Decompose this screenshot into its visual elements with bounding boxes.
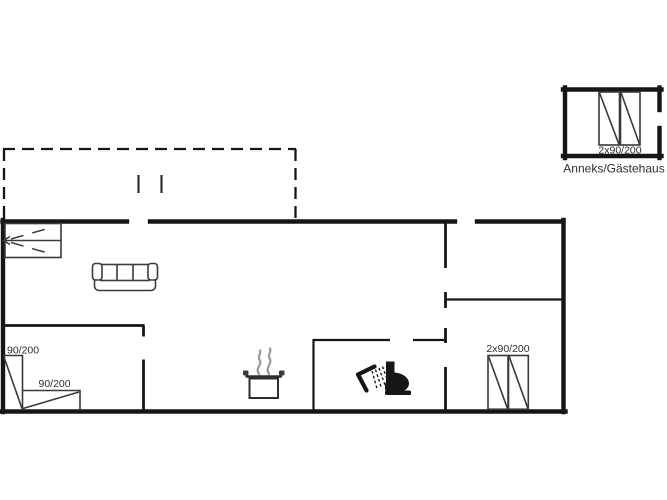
shower-arm: [358, 367, 375, 391]
floor-plan: 90/200 90/200 2x90/200 2x90/200 Anneks/G…: [0, 0, 667, 500]
shower-icon: [358, 367, 388, 391]
toilet-bowl: [385, 362, 409, 393]
double-bed-main: [488, 356, 528, 410]
interior-walls: [2, 221, 564, 411]
steam-wave-2: [268, 349, 271, 375]
bed-label-vertical: 90/200: [7, 345, 39, 357]
shower-spray-3: [379, 368, 385, 385]
bed-label-horizontal: 90/200: [39, 378, 71, 390]
toilet-base: [385, 391, 411, 396]
annex-building: 2x90/200 Anneks/Gästehaus: [563, 88, 665, 176]
sofa-armrest-right: [148, 264, 158, 281]
bunk-bed-diagonal-top: [11, 227, 53, 239]
shower-spray-1: [372, 371, 378, 391]
bed-diagonal: [4, 357, 22, 409]
terrace-outline: [3, 149, 296, 218]
sofa-armrest-left: [93, 264, 103, 281]
pot-handle-right: [279, 371, 285, 376]
single-bed-vertical: [3, 356, 23, 411]
toilet-icon: [385, 362, 411, 396]
annex-caption: Anneks/Gästehaus: [563, 162, 664, 176]
pot-body: [250, 379, 279, 399]
bed-diagonal-left: [488, 356, 507, 409]
double-bed-annex: [599, 92, 640, 145]
bed-diagonal-left: [599, 93, 619, 145]
bed-diagonal: [23, 392, 79, 409]
sofa-cushions: [101, 265, 149, 281]
cooking-pot-icon: [243, 349, 285, 399]
bunk-bed-icon: [4, 224, 62, 258]
shower-spray-2: [376, 370, 382, 389]
bed-diagonal-right: [621, 93, 640, 145]
sofa-icon: [93, 264, 158, 291]
pot-handle-left: [243, 371, 249, 376]
annex-bed-label: 2x90/200: [598, 145, 641, 157]
main-house-exterior-walls: [1, 220, 566, 412]
bed-diagonal-right: [509, 356, 528, 409]
steam-wave-1: [258, 351, 261, 375]
bunk-bed-diagonal-bottom: [11, 243, 53, 255]
double-bed-label: 2x90/200: [486, 343, 529, 355]
single-bed-horizontal: [23, 391, 81, 411]
terrace-door-marks: [139, 175, 162, 193]
